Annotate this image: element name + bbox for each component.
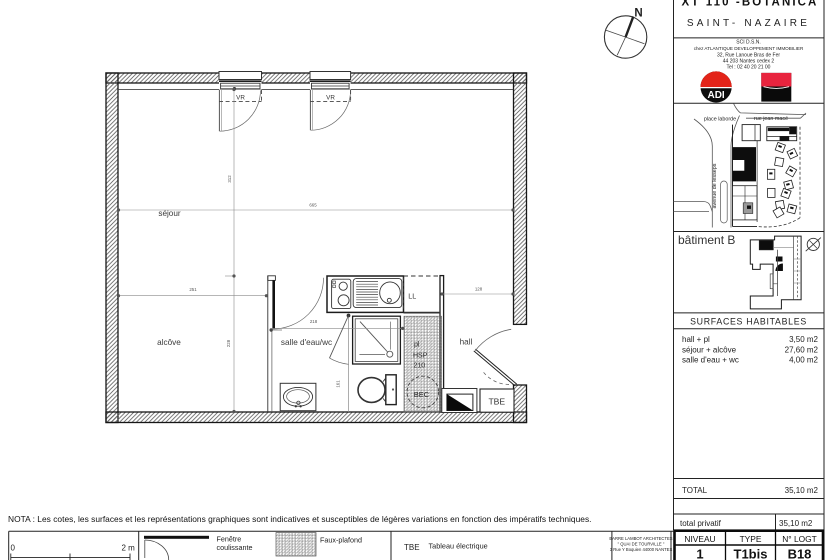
svg-text:BARRE LAMBOT ARCHITECTES: BARRE LAMBOT ARCHITECTES [609, 536, 672, 541]
svg-text:0: 0 [11, 544, 16, 553]
svg-text:SCI D.S.N.: SCI D.S.N. [736, 40, 760, 46]
svg-text:bâtiment B: bâtiment B [678, 233, 735, 247]
svg-text:Faux-plafond: Faux-plafond [320, 536, 362, 545]
svg-text:NOTA : Les cotes, les surfaces: NOTA : Les cotes, les surfaces et les re… [8, 514, 592, 524]
svg-text:4,00 m2: 4,00 m2 [789, 356, 818, 365]
svg-text:Tel : 02 40 20 21 00: Tel : 02 40 20 21 00 [727, 65, 771, 71]
svg-text:161: 161 [336, 380, 341, 388]
svg-text:218: 218 [310, 319, 318, 324]
svg-text:ADI: ADI [707, 90, 724, 101]
svg-text:place laborde: place laborde [704, 117, 736, 123]
svg-text:3 Rue Y Boquien 44000 NANTES: 3 Rue Y Boquien 44000 NANTES [610, 547, 673, 552]
svg-text:228: 228 [226, 339, 231, 347]
svg-text:128: 128 [475, 287, 483, 292]
svg-text:N° LOGT: N° LOGT [782, 534, 817, 544]
svg-text:35,10 m2: 35,10 m2 [785, 486, 819, 495]
svg-text:séjour + alcôve: séjour + alcôve [682, 345, 737, 354]
svg-text:BEC: BEC [414, 390, 430, 399]
svg-text:pl: pl [414, 342, 420, 349]
svg-text:27,60 m2: 27,60 m2 [785, 345, 819, 354]
svg-text:salle d'eau + wc: salle d'eau + wc [682, 356, 739, 365]
svg-text:alcôve: alcôve [157, 338, 181, 347]
svg-text:coulissante: coulissante [217, 543, 253, 552]
svg-text:35,10 m2: 35,10 m2 [779, 519, 813, 528]
svg-text:T1bis: T1bis [734, 547, 768, 560]
svg-text:LL: LL [408, 291, 416, 300]
svg-text:TOTAL: TOTAL [682, 486, 708, 495]
svg-text:SURFACES HABITABLES: SURFACES HABITABLES [690, 317, 807, 327]
svg-text:B18: B18 [788, 547, 812, 560]
svg-text:1: 1 [696, 547, 703, 560]
svg-text:hall + pl: hall + pl [682, 335, 710, 344]
svg-text:HSP: HSP [413, 353, 428, 360]
svg-text:251: 251 [189, 287, 197, 292]
svg-text:rue jean macé: rue jean macé [754, 116, 788, 122]
svg-text:VR: VR [236, 94, 245, 101]
svg-text:VR: VR [326, 94, 335, 101]
svg-text:SAINT- NAZAIRE: SAINT- NAZAIRE [687, 18, 810, 29]
svg-text:" QUAI DE TOURVILLE ": " QUAI DE TOURVILLE " [618, 542, 665, 547]
svg-text:TBE: TBE [488, 396, 505, 406]
svg-text:XT 110 -BOTANICA: XT 110 -BOTANICA [682, 0, 819, 9]
svg-text:312: 312 [227, 175, 232, 183]
svg-text:Tableau électrique: Tableau électrique [429, 542, 488, 551]
svg-text:avenue de lesseps: avenue de lesseps [712, 163, 718, 208]
svg-text:N: N [634, 8, 642, 20]
svg-text:NIVEAU: NIVEAU [684, 534, 715, 544]
svg-text:3,50 m2: 3,50 m2 [789, 335, 818, 344]
svg-text:séjour: séjour [158, 209, 181, 218]
svg-text:hall: hall [460, 337, 473, 346]
svg-text:total privatif: total privatif [680, 519, 722, 528]
svg-text:salle d'eau/wc: salle d'eau/wc [281, 338, 332, 347]
svg-text:TYPE: TYPE [740, 534, 762, 544]
svg-text:2 m: 2 m [122, 544, 136, 553]
svg-text:665: 665 [309, 203, 317, 208]
svg-text:chez ATLANTIQUE DEVELOPPEMENT: chez ATLANTIQUE DEVELOPPEMENT IMMOBILIER [694, 46, 804, 51]
svg-text:TBE: TBE [404, 543, 420, 552]
svg-text:210: 210 [414, 363, 426, 370]
